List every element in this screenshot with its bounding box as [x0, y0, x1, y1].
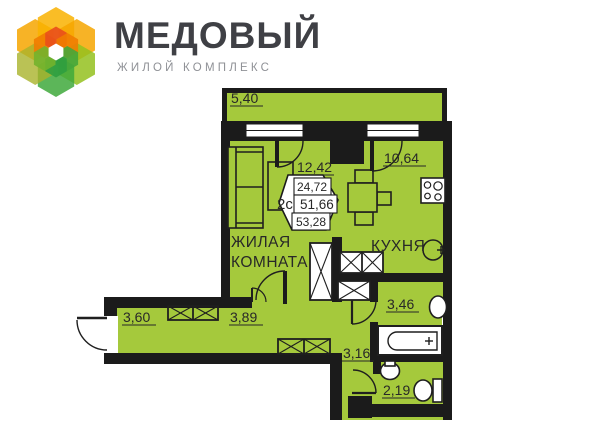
- bathroom-area-label: 3,46: [387, 296, 414, 312]
- wc-area-label: 2,19: [383, 382, 410, 398]
- toilet-icon: [414, 379, 442, 402]
- unit-area-row3: 53,28: [296, 215, 326, 229]
- bath-sink-icon: [430, 296, 447, 318]
- logo-flower: [17, 7, 95, 97]
- kitchen-label: КУХНЯ: [371, 238, 425, 255]
- sofa-icon: [228, 147, 263, 228]
- stove-icon: [421, 178, 445, 203]
- hall-left-area-label: 3,60: [123, 309, 150, 325]
- unit-type-label: 2с: [277, 196, 293, 213]
- wardrobe-icon: [310, 243, 332, 300]
- unit-area-row2: 51,66: [300, 197, 334, 212]
- site-header: МЕДОВЫЙ ЖИЛОЙ КОМПЛЕКС: [10, 6, 321, 98]
- unit-area-row1: 24,72: [297, 180, 327, 194]
- medovy-logo-icon: [10, 6, 102, 98]
- kitchen-area-label: 10,64: [384, 150, 419, 166]
- living-area-label: 12,42: [297, 159, 332, 175]
- living-room-label: ЖИЛАЯ: [231, 234, 291, 251]
- brand-subtitle: ЖИЛОЙ КОМПЛЕКС: [117, 62, 321, 74]
- wardrobe-icon: [340, 252, 383, 273]
- brand-title: МЕДОВЫЙ: [114, 16, 321, 56]
- vent-shaft-icon: [338, 281, 370, 300]
- bathtub-icon: [378, 326, 442, 355]
- hall-main-area-label: 3,89: [230, 309, 257, 325]
- living-room-label2: КОМНАТА: [231, 254, 308, 271]
- hall-inner-area-label: 3,16: [343, 345, 370, 361]
